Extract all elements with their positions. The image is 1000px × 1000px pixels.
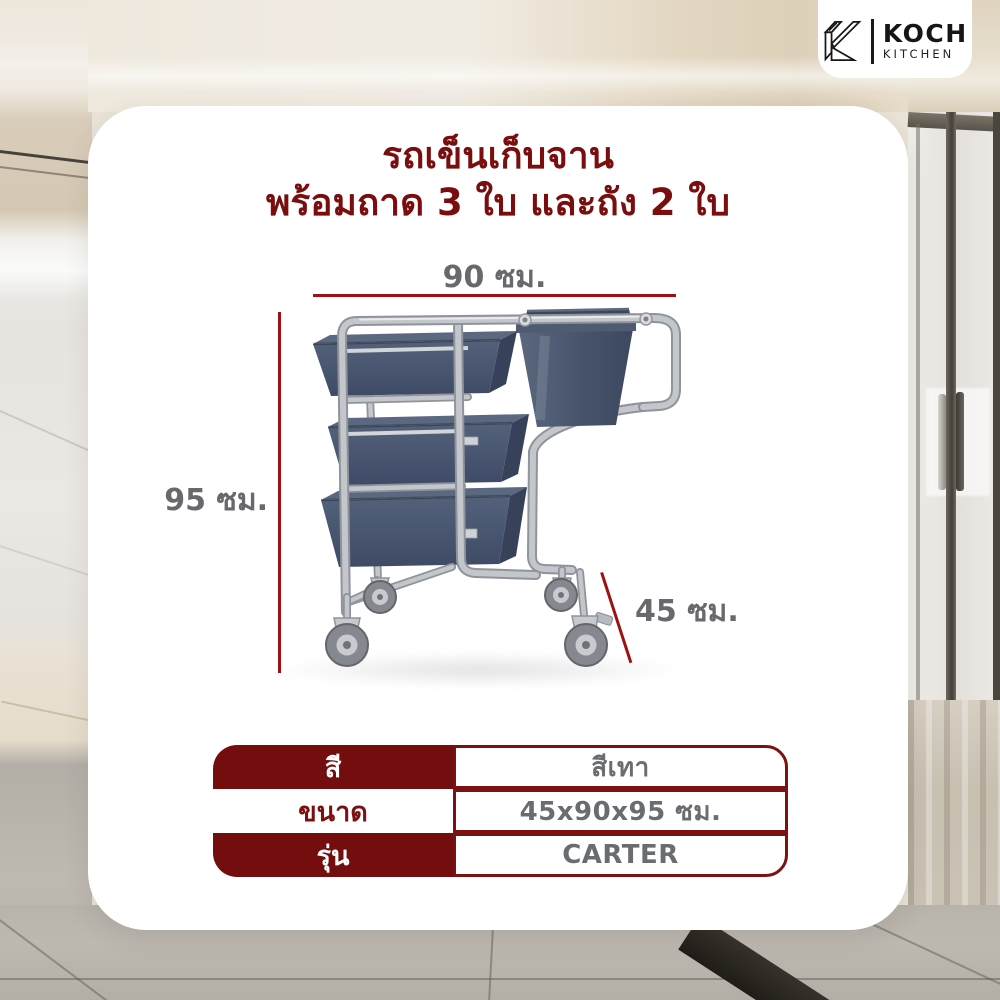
door-frame-left [946,112,956,702]
koch-k-icon [822,18,862,64]
background-right-glass-door [908,0,1000,1000]
spec-label-model: รุ่น [213,833,453,877]
brand-logo: KOCH KITCHEN [818,0,972,78]
spec-table: สี ขนาด รุ่น สีเทา 45x90x95 ซม. CARTER [213,745,788,877]
spec-table-label-column: สี ขนาด รุ่น [213,745,453,877]
door-handle-icon [938,394,946,490]
product-title-line2: พร้อมถาด 3 ใบ และถัง 2 ใบ [88,179,908,226]
product-title-line1: รถเข็นเก็บจาน [88,132,908,179]
product-card: รถเข็นเก็บจาน พร้อมถาด 3 ใบ และถัง 2 ใบ … [88,106,908,930]
background-left-hallway [0,0,92,1000]
door-frame-thin [916,124,920,702]
spec-value-color: สีเทา [453,745,788,789]
cart-bucket [516,318,636,427]
brand-name: KOCH [883,21,968,46]
floor-tile-line [488,930,494,1000]
cart-caster-front-left [326,597,368,666]
spec-label-size: ขนาด [213,789,453,833]
product-title: รถเข็นเก็บจาน พร้อมถาด 3 ใบ และถัง 2 ใบ [88,132,908,226]
dimension-height-line [278,312,281,673]
cart-tray-3 [321,487,527,567]
cart-caster-rear-right [545,570,577,611]
door-frame-right [993,112,1000,702]
spec-label-color: สี [213,745,453,789]
dimension-height-label: 95 ซม. [150,477,268,524]
ceiling-trim-line-thin [0,166,93,179]
page: { "brand": { "name": "KOCH", "subname": … [0,0,1000,1000]
dimension-width-line [313,294,676,297]
brand-subname: KITCHEN [883,49,968,61]
logo-divider [871,19,874,64]
door-handle-icon [956,392,964,491]
spec-value-model: CARTER [453,833,788,877]
background-ceiling [88,0,912,112]
product-image-cart [285,300,695,680]
spec-value-size: 45x90x95 ซม. [453,789,788,833]
cart-caster-rear-left [364,578,396,613]
ceiling-trim-line [0,150,93,164]
floor-tile-line [0,978,1000,980]
floor-tile-line [0,910,108,1000]
cart-tray-2 [328,414,529,485]
floor-tile-line [871,923,1000,992]
